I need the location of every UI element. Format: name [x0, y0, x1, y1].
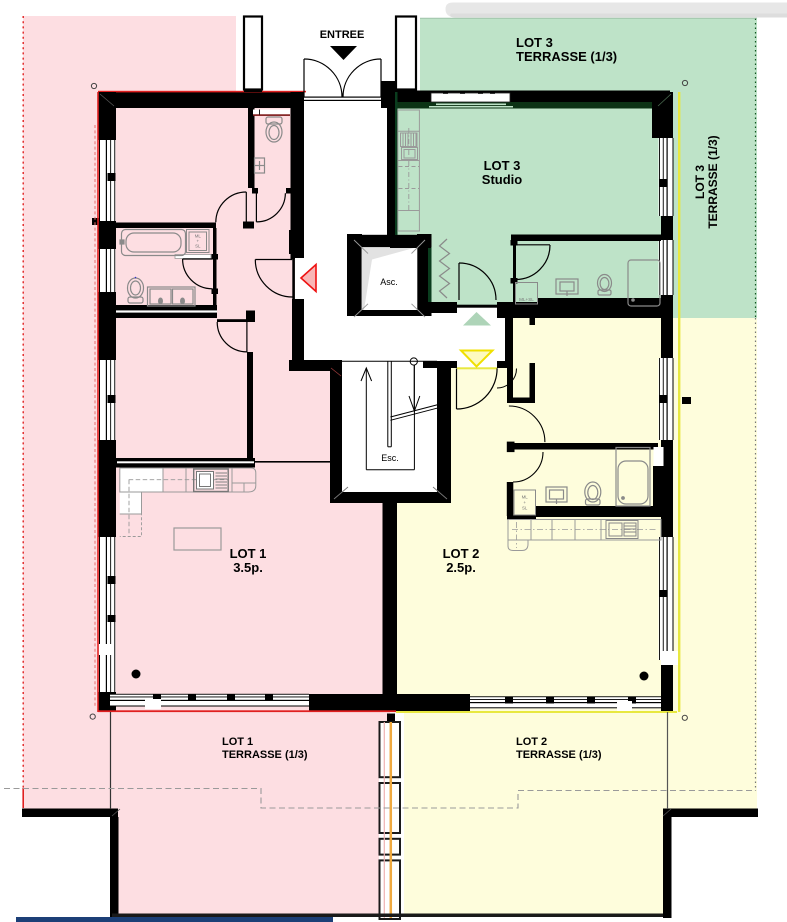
- svg-text:3.5p.: 3.5p.: [233, 560, 263, 575]
- svg-text:2.5p.: 2.5p.: [446, 560, 476, 575]
- svg-text:LOT 3: LOT 3: [693, 165, 707, 199]
- svg-text:LOT 3: LOT 3: [516, 35, 553, 50]
- svg-text:Esc.: Esc.: [381, 453, 399, 463]
- svg-text:SL: SL: [522, 506, 528, 511]
- svg-text:TERRASSE (1/3): TERRASSE (1/3): [516, 749, 602, 761]
- svg-text:SL: SL: [195, 244, 201, 249]
- svg-text:TERRASSE (1/3): TERRASSE (1/3): [516, 49, 617, 64]
- svg-text:LOT 1: LOT 1: [222, 736, 253, 748]
- svg-text:ML+SL: ML+SL: [519, 297, 534, 302]
- svg-text:Asc.: Asc.: [380, 277, 398, 287]
- svg-text:LOT 2: LOT 2: [516, 736, 547, 748]
- svg-text:+: +: [523, 500, 526, 505]
- svg-text:ML: ML: [522, 495, 529, 500]
- svg-text:TERRASSE (1/3): TERRASSE (1/3): [706, 135, 720, 228]
- svg-text:Studio: Studio: [482, 172, 522, 187]
- svg-text:TERRASSE (1/3): TERRASSE (1/3): [222, 749, 308, 761]
- svg-text:LOT 1: LOT 1: [230, 546, 267, 561]
- svg-text:ENTREE: ENTREE: [320, 29, 365, 41]
- svg-text:LOT 3: LOT 3: [484, 158, 521, 173]
- svg-text:LOT 2: LOT 2: [443, 546, 480, 561]
